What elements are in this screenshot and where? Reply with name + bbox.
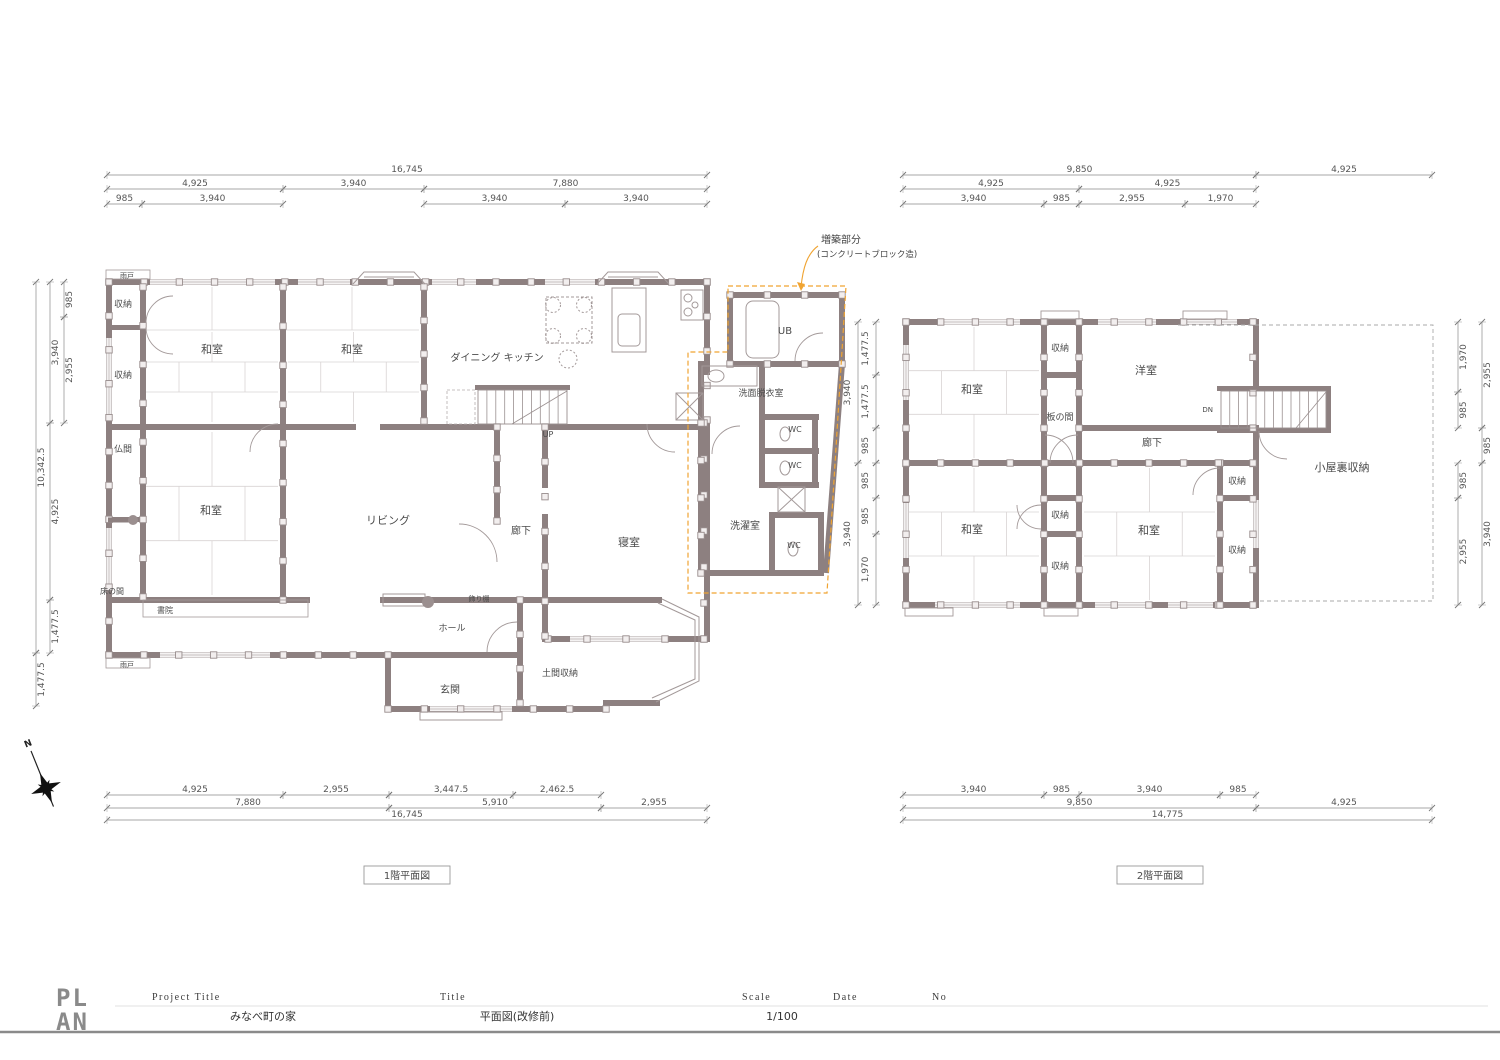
dim-value: 985 bbox=[1459, 472, 1469, 489]
stair-break-line bbox=[1296, 392, 1326, 428]
dim-value: 3,940 bbox=[843, 379, 853, 405]
bathtub bbox=[746, 301, 779, 358]
post bbox=[1146, 460, 1152, 466]
project-title-label: Project Title bbox=[152, 992, 221, 1003]
post bbox=[1041, 602, 1047, 608]
door-swing-arc bbox=[146, 327, 173, 354]
room-label-amado-bottom: 雨戸 bbox=[120, 661, 134, 669]
post bbox=[280, 323, 286, 329]
post bbox=[563, 279, 569, 285]
dim-value: 16,745 bbox=[391, 165, 423, 175]
wall-segment bbox=[1217, 386, 1331, 391]
dim-value: 10,342.5 bbox=[37, 447, 47, 487]
wall-segment bbox=[818, 512, 824, 576]
dim-value: 2,955 bbox=[323, 785, 349, 795]
dim-value: 985 bbox=[65, 291, 75, 308]
dim-value: 4,925 bbox=[51, 499, 61, 525]
post bbox=[903, 390, 909, 396]
post bbox=[1007, 602, 1013, 608]
post bbox=[1217, 602, 1223, 608]
wall-segment bbox=[769, 570, 824, 576]
dim-value: 985 bbox=[861, 507, 871, 524]
shutter-box bbox=[905, 608, 953, 616]
room-label-shuno-3: 収納 bbox=[1051, 560, 1069, 572]
dim-value: 1,970 bbox=[1208, 194, 1234, 204]
post bbox=[494, 706, 500, 712]
dim-value: 3,940 bbox=[482, 194, 508, 204]
post bbox=[1250, 390, 1256, 396]
post bbox=[903, 566, 909, 572]
post bbox=[421, 384, 427, 390]
stove-burner bbox=[684, 294, 692, 302]
post bbox=[1217, 495, 1223, 501]
post bbox=[517, 700, 523, 706]
dim-value: 985 bbox=[1459, 401, 1469, 418]
room-label-hall: ホール bbox=[438, 623, 465, 634]
dim-value: 3,940 bbox=[843, 521, 853, 547]
post bbox=[245, 652, 251, 658]
post bbox=[421, 284, 427, 290]
post bbox=[517, 665, 523, 671]
dim-value: 1,477.5 bbox=[861, 384, 871, 418]
post bbox=[698, 495, 704, 501]
post bbox=[280, 401, 286, 407]
stove-burner bbox=[692, 302, 698, 308]
room-label-shoin: 書院 bbox=[157, 605, 173, 615]
dim-value: 3,940 bbox=[51, 339, 61, 365]
dim-value: 3,940 bbox=[961, 785, 987, 795]
post bbox=[385, 706, 391, 712]
entrance-step bbox=[420, 712, 502, 720]
post bbox=[140, 516, 146, 522]
post bbox=[517, 631, 523, 637]
post bbox=[972, 319, 978, 325]
post bbox=[1180, 319, 1186, 325]
post bbox=[1217, 566, 1223, 572]
compass-star-diagonal bbox=[34, 776, 58, 800]
post bbox=[457, 706, 463, 712]
post bbox=[903, 602, 909, 608]
no-label: No bbox=[932, 992, 947, 1003]
dim-value: 7,880 bbox=[235, 798, 261, 808]
post bbox=[493, 279, 499, 285]
dim-value: 4,925 bbox=[1331, 165, 1357, 175]
post bbox=[350, 652, 356, 658]
post bbox=[106, 279, 112, 285]
post bbox=[140, 323, 146, 329]
post bbox=[1041, 566, 1047, 572]
post bbox=[494, 455, 500, 461]
dim-value: 985 bbox=[1229, 785, 1246, 795]
stair-break-line bbox=[512, 391, 567, 424]
room-label-amado-top: 雨戸 bbox=[120, 272, 134, 280]
room-label-washitsu-1: 和室 bbox=[961, 382, 983, 396]
post bbox=[421, 351, 427, 357]
chair bbox=[546, 298, 561, 313]
chair bbox=[577, 329, 592, 344]
wall-segment bbox=[380, 597, 523, 603]
wall-segment bbox=[517, 597, 523, 706]
dim-value: 4,925 bbox=[1155, 179, 1181, 189]
dim-value: 1,970 bbox=[1459, 344, 1469, 370]
room-label-roka: 廊下 bbox=[1142, 436, 1162, 449]
room-label-wc-3: WC bbox=[787, 541, 801, 550]
room-label-tokonoma: 床の間 bbox=[100, 586, 124, 596]
dim-value: 985 bbox=[861, 437, 871, 454]
post bbox=[1041, 354, 1047, 360]
wall-segment bbox=[385, 652, 391, 712]
room-label-kazaridana: 飾り棚 bbox=[469, 594, 490, 603]
post bbox=[106, 652, 112, 658]
floor-plan-drawing: 16,7454,9253,9407,8809853,9403,9403,9404… bbox=[0, 0, 1500, 1060]
logo-text-bottom: AN bbox=[56, 1008, 89, 1036]
room-label-butsuma: 仏間 bbox=[114, 444, 132, 455]
post bbox=[972, 460, 978, 466]
post bbox=[1076, 460, 1082, 466]
room-label-shinshitsu: 寝室 bbox=[618, 535, 640, 549]
post bbox=[140, 284, 146, 290]
post bbox=[801, 361, 807, 367]
room-label-washitsu-3: 和室 bbox=[200, 503, 222, 517]
post bbox=[140, 594, 146, 600]
dim-value: 1,477.5 bbox=[861, 331, 871, 365]
post bbox=[140, 400, 146, 406]
post bbox=[494, 424, 500, 430]
post bbox=[176, 652, 182, 658]
post bbox=[211, 279, 217, 285]
wall-segment bbox=[106, 424, 282, 430]
post bbox=[1076, 602, 1082, 608]
post bbox=[1076, 390, 1082, 396]
door-swing-arc bbox=[1193, 468, 1220, 495]
post bbox=[566, 706, 572, 712]
north-arrow: N bbox=[12, 734, 69, 813]
post bbox=[140, 439, 146, 445]
room-label-sentaku: 洗濯室 bbox=[730, 519, 760, 532]
post bbox=[387, 279, 393, 285]
dim-value: 985 bbox=[116, 194, 133, 204]
post bbox=[603, 706, 609, 712]
wall-segment bbox=[812, 414, 818, 488]
chair bbox=[559, 350, 577, 368]
post bbox=[1076, 496, 1082, 502]
post bbox=[764, 292, 770, 298]
post bbox=[839, 292, 845, 298]
post bbox=[801, 292, 807, 298]
door-swing-arc bbox=[1259, 431, 1287, 459]
post bbox=[1007, 460, 1013, 466]
post bbox=[1250, 319, 1256, 325]
door-swing-arc bbox=[712, 426, 740, 454]
post bbox=[1146, 319, 1152, 325]
tokonoma-post bbox=[128, 515, 138, 525]
dim-value: 985 bbox=[1053, 194, 1070, 204]
plan1-labels: 雨戸 収納 収納 仏間 和室 和室 ダイニング キッチン 和室 リビング 床の間… bbox=[100, 233, 917, 696]
dim-value: 3,940 bbox=[961, 194, 987, 204]
post bbox=[385, 652, 391, 658]
room-label-washitsu-1: 和室 bbox=[201, 342, 223, 356]
plan2-labels: 和室 収納 洋室 板の間 廊下 DN 和室 収納 収納 和室 収納 収納 小屋裏… bbox=[961, 342, 1370, 572]
room-label-shuno-2: 収納 bbox=[114, 369, 132, 381]
room-label-ub: UB bbox=[778, 326, 792, 337]
post bbox=[938, 460, 944, 466]
north-label: N bbox=[23, 738, 34, 750]
post bbox=[903, 460, 909, 466]
dim-value: 3,940 bbox=[200, 194, 226, 204]
dim-value: 2,955 bbox=[65, 357, 75, 383]
post bbox=[1250, 566, 1256, 572]
title-value: 平面図(改修前) bbox=[480, 1009, 555, 1023]
door-swing-arc bbox=[146, 296, 173, 323]
post bbox=[698, 457, 704, 463]
room-label-roka: 廊下 bbox=[511, 524, 531, 537]
post bbox=[528, 279, 534, 285]
wall-segment bbox=[759, 367, 765, 488]
wall-segment bbox=[494, 424, 500, 524]
post bbox=[247, 279, 253, 285]
stair-landing bbox=[447, 390, 475, 424]
dim-value: 2,462.5 bbox=[540, 785, 574, 795]
title-block: PL AN Project Title みなべ町の家 Title 平面図(改修前… bbox=[0, 984, 1500, 1036]
post bbox=[1041, 390, 1047, 396]
plan1-title: 1階平面図 bbox=[384, 870, 430, 882]
room-label-shuno-1: 収納 bbox=[114, 298, 132, 310]
title-label: Title bbox=[440, 992, 466, 1003]
room-label-wc-2: WC bbox=[788, 461, 802, 470]
post bbox=[701, 600, 707, 606]
post bbox=[1250, 496, 1256, 502]
post bbox=[1111, 460, 1117, 466]
wall-segment bbox=[475, 385, 570, 390]
dim-value: 3,447.5 bbox=[434, 785, 468, 795]
dim-value: 7,880 bbox=[553, 179, 579, 189]
dim-value: 1,477.5 bbox=[37, 662, 47, 696]
dining-table bbox=[546, 297, 592, 343]
post bbox=[176, 279, 182, 285]
dim-value: 4,925 bbox=[182, 785, 208, 795]
post bbox=[421, 418, 427, 424]
post bbox=[938, 602, 944, 608]
post bbox=[704, 313, 710, 319]
post bbox=[1111, 319, 1117, 325]
door-swing-arc bbox=[459, 524, 497, 562]
post bbox=[542, 633, 548, 639]
post bbox=[1076, 354, 1082, 360]
post bbox=[633, 279, 639, 285]
post bbox=[669, 279, 675, 285]
post bbox=[140, 555, 146, 561]
post bbox=[1076, 531, 1082, 537]
post bbox=[280, 362, 286, 368]
post bbox=[1041, 425, 1047, 431]
post bbox=[1076, 566, 1082, 572]
post bbox=[1250, 531, 1256, 537]
dim-value: 9,850 bbox=[1067, 165, 1093, 175]
post bbox=[106, 414, 112, 420]
date-label: Date bbox=[833, 992, 858, 1003]
dim-value: 4,925 bbox=[182, 179, 208, 189]
room-label-living: リビング bbox=[366, 513, 410, 527]
post bbox=[542, 528, 548, 534]
stair-dn-label: DN bbox=[1202, 406, 1213, 414]
post bbox=[938, 319, 944, 325]
post bbox=[542, 459, 548, 465]
wall-segment bbox=[704, 279, 710, 375]
chair bbox=[577, 298, 592, 313]
post bbox=[542, 563, 548, 569]
room-label-washitsu-2: 和室 bbox=[961, 522, 983, 536]
dim-value: 3,940 bbox=[1483, 521, 1493, 547]
post bbox=[494, 518, 500, 524]
dim-value: 985 bbox=[861, 472, 871, 489]
scale-label: Scale bbox=[742, 992, 771, 1003]
wall-segment bbox=[380, 424, 499, 430]
post bbox=[1007, 319, 1013, 325]
room-label-genkan: 玄関 bbox=[440, 683, 460, 696]
wall-segment bbox=[769, 512, 823, 518]
wall-segment bbox=[603, 700, 660, 706]
post bbox=[280, 519, 286, 525]
wall-segment bbox=[1217, 428, 1331, 433]
post bbox=[421, 317, 427, 323]
post bbox=[972, 602, 978, 608]
dim-value: 5,910 bbox=[482, 798, 508, 808]
kitchen-counter bbox=[612, 288, 646, 352]
wall-segment bbox=[769, 512, 775, 576]
room-label-yoshitsu: 洋室 bbox=[1135, 363, 1157, 377]
dim-value: 985 bbox=[1483, 437, 1493, 454]
shutter-box bbox=[1041, 311, 1079, 319]
post bbox=[903, 496, 909, 502]
generated-geometry: 16,7454,9253,9407,8809853,9403,9403,9404… bbox=[32, 165, 1493, 824]
wall-segment bbox=[517, 597, 662, 603]
post bbox=[623, 636, 629, 642]
post bbox=[1041, 496, 1047, 502]
room-label-dining-kitchen: ダイニング キッチン bbox=[450, 351, 543, 364]
dim-value: 2,955 bbox=[1119, 194, 1145, 204]
dim-value: 3,940 bbox=[341, 179, 367, 189]
door-swing-arc bbox=[795, 333, 823, 361]
stove-burner bbox=[684, 308, 692, 316]
dim-value: 2,955 bbox=[1483, 362, 1493, 388]
dim-value: 4,925 bbox=[978, 179, 1004, 189]
room-label-shuno-5: 収納 bbox=[1228, 544, 1246, 556]
dim-value: 16,745 bbox=[391, 810, 423, 820]
post bbox=[106, 482, 112, 488]
post bbox=[210, 652, 216, 658]
post bbox=[106, 550, 112, 556]
post bbox=[903, 319, 909, 325]
room-label-shuno-2: 収納 bbox=[1051, 509, 1069, 521]
dim-value: 985 bbox=[1053, 785, 1070, 795]
wall-segment bbox=[545, 424, 708, 430]
dim-value: 2,955 bbox=[641, 798, 667, 808]
room-label-senmen: 洗面脱衣室 bbox=[738, 387, 783, 399]
hall-post bbox=[422, 596, 434, 608]
wall-segment bbox=[759, 448, 819, 454]
post bbox=[1042, 460, 1048, 466]
post bbox=[280, 440, 286, 446]
post bbox=[280, 558, 286, 564]
post bbox=[698, 570, 704, 576]
post bbox=[140, 361, 146, 367]
post bbox=[903, 531, 909, 537]
room-label-wc-1: WC bbox=[788, 425, 802, 434]
dim-value: 14,775 bbox=[1152, 810, 1184, 820]
post bbox=[584, 636, 590, 642]
post bbox=[1111, 602, 1117, 608]
post bbox=[701, 564, 707, 570]
room-label-shuno-1: 収納 bbox=[1051, 342, 1069, 354]
post bbox=[704, 348, 710, 354]
post bbox=[1146, 602, 1152, 608]
post bbox=[315, 652, 321, 658]
post bbox=[839, 361, 845, 367]
door-swing-arc bbox=[1045, 435, 1073, 463]
post bbox=[1180, 460, 1186, 466]
post bbox=[704, 279, 710, 285]
doma-bay-window-line bbox=[652, 603, 695, 698]
post bbox=[1041, 531, 1047, 537]
post bbox=[1217, 531, 1223, 537]
post bbox=[280, 284, 286, 290]
dim-value: 2,955 bbox=[1459, 539, 1469, 565]
post bbox=[106, 313, 112, 319]
kitchen-sink bbox=[618, 314, 640, 346]
dim-value: 1,970 bbox=[861, 556, 871, 582]
post bbox=[106, 347, 112, 353]
post bbox=[530, 706, 536, 712]
dim-value: 3,940 bbox=[1137, 785, 1163, 795]
post bbox=[701, 636, 707, 642]
post bbox=[317, 279, 323, 285]
room-label-shuno-4: 収納 bbox=[1228, 475, 1246, 487]
post bbox=[106, 448, 112, 454]
post bbox=[1076, 319, 1082, 325]
post bbox=[662, 636, 668, 642]
post bbox=[1250, 460, 1256, 466]
room-label-doma-shuno: 土間収納 bbox=[542, 667, 578, 679]
wall-segment bbox=[727, 292, 845, 298]
post bbox=[140, 478, 146, 484]
plan-title-boxes: 1階平面図 2階平面図 bbox=[364, 866, 1203, 884]
post bbox=[458, 279, 464, 285]
post bbox=[903, 354, 909, 360]
wash-basin bbox=[708, 370, 724, 382]
shutter-box bbox=[1183, 311, 1227, 319]
post bbox=[517, 597, 523, 603]
dim-value: 3,940 bbox=[623, 194, 649, 204]
post bbox=[1180, 602, 1186, 608]
post bbox=[106, 618, 112, 624]
room-label-washitsu-2: 和室 bbox=[341, 342, 363, 356]
addition-leader-line bbox=[801, 246, 818, 287]
post bbox=[698, 420, 704, 426]
wall-segment bbox=[280, 424, 286, 603]
wall-segment bbox=[1326, 386, 1331, 433]
dim-value: 1,477.5 bbox=[51, 609, 61, 643]
project-title-value: みなべ町の家 bbox=[230, 1009, 296, 1023]
post bbox=[494, 486, 500, 492]
post bbox=[1250, 602, 1256, 608]
stair-up-label: UP bbox=[543, 430, 554, 439]
dim-value: 4,925 bbox=[1331, 798, 1357, 808]
post bbox=[1215, 319, 1221, 325]
post bbox=[141, 652, 147, 658]
post bbox=[903, 425, 909, 431]
post bbox=[542, 493, 548, 499]
post bbox=[542, 598, 548, 604]
